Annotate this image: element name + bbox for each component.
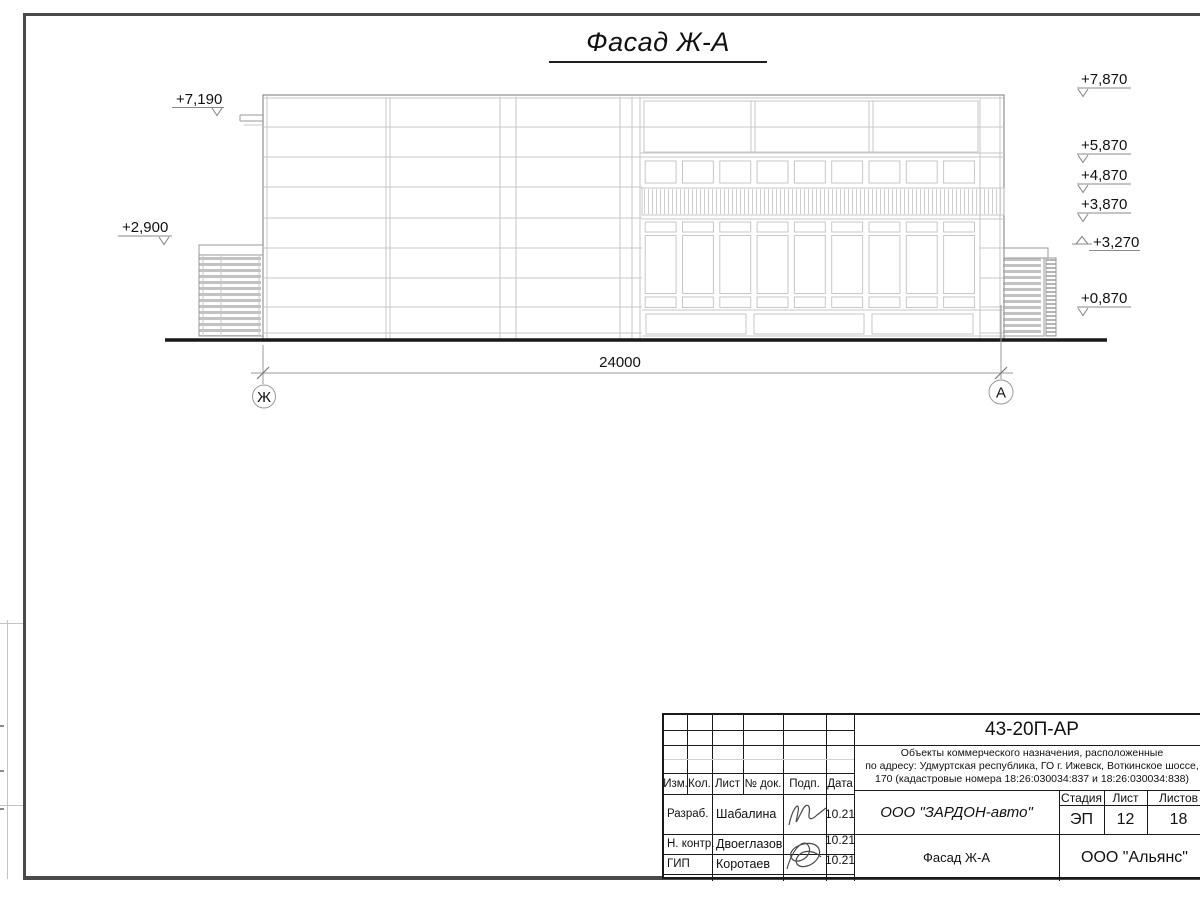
row-date: 10.21: [826, 850, 854, 870]
facade-floor-lines: [264, 127, 1004, 333]
window-pane: [906, 222, 937, 232]
window-pane: [794, 222, 825, 232]
window-pane: [757, 236, 788, 294]
window-pane: [869, 161, 900, 183]
elevation-mark-r3: +4,870: [1077, 167, 1131, 193]
signatures: [781, 795, 829, 879]
project-description: Объекты коммерческого назначения, распол…: [854, 747, 1200, 786]
row-role: ГИП: [667, 854, 712, 874]
louver-screen-right: [1004, 248, 1056, 336]
storefront-window-grid: [642, 161, 1004, 310]
elevation-value: +3,270: [1093, 234, 1139, 251]
stage-header: Стадия: [1059, 790, 1104, 805]
row-date: 10.21: [826, 830, 854, 850]
elevation-mark-r1: +7,870: [1077, 71, 1131, 97]
window-pane: [683, 161, 714, 183]
roof-canopy-left: [240, 115, 263, 125]
window-pane: [720, 236, 751, 294]
elevation-value: +0,870: [1081, 290, 1127, 307]
window-pane: [794, 161, 825, 183]
margin-text-remnant: [0, 770, 4, 772]
company-name: ООО "ЗАРДОН-авто": [854, 790, 1059, 834]
sheet-value: 12: [1104, 805, 1147, 834]
window-pane: [869, 236, 900, 294]
storefront-base-panels: [642, 314, 1004, 336]
row-role: Разраб.: [667, 794, 712, 834]
window-pane: [906, 297, 937, 308]
elevation-value: +7,190: [176, 91, 222, 108]
elevation-mark-r6: +0,870: [1077, 290, 1131, 316]
row-role: Н. контр.: [667, 834, 712, 854]
margin-column-line: [7, 620, 8, 879]
window-pane: [645, 222, 676, 232]
window-pane: [757, 222, 788, 232]
window-pane: [906, 236, 937, 294]
window-pane: [944, 222, 975, 232]
axis-label-a: А: [996, 385, 1006, 402]
elevation-value: +5,870: [1081, 137, 1127, 154]
window-pane: [645, 297, 676, 308]
window-pane: [645, 236, 676, 294]
elevation-value: +3,870: [1081, 196, 1127, 213]
stage-value: ЭП: [1059, 805, 1104, 834]
elevation-mark-r4: +3,870: [1077, 196, 1131, 222]
window-pane: [832, 297, 863, 308]
window-pane: [757, 161, 788, 183]
window-pane: [832, 236, 863, 294]
row-name: Шабалина: [716, 794, 783, 834]
window-pane: [683, 297, 714, 308]
margin-divider: [0, 623, 23, 624]
row-date: 10.21: [826, 804, 854, 824]
window-pane: [720, 297, 751, 308]
elevation-value: +2,900: [122, 219, 168, 236]
window-pane: [869, 222, 900, 232]
window-pane: [720, 161, 751, 183]
signature-scribble: [787, 843, 821, 869]
row-name: Коротаев: [716, 854, 783, 874]
margin-divider: [0, 805, 23, 806]
elevation-value: +7,870: [1081, 71, 1127, 88]
header-doc: № док.: [743, 773, 783, 794]
header-data: Дата: [826, 773, 854, 794]
window-pane: [906, 161, 937, 183]
header-list: Лист: [712, 773, 743, 794]
header-kol: Кол.: [687, 773, 712, 794]
object-name: Фасад Ж-А: [854, 834, 1059, 881]
title-block: Изм. Кол. Лист № док. Подп. Дата Разраб.…: [662, 713, 1200, 879]
elevation-value: +4,870: [1081, 167, 1127, 184]
window-pane: [832, 161, 863, 183]
signature-scribble: [789, 805, 826, 825]
sheets-header: Листов: [1147, 790, 1200, 805]
header-podp: Подп.: [783, 773, 826, 794]
margin-text-remnant: [0, 808, 4, 810]
header-izm: Изм.: [664, 773, 687, 794]
sheets-value: 18: [1147, 805, 1200, 834]
window-pane: [645, 161, 676, 183]
drawing-sheet: { "drawing": { "title": "Фасад Ж-А", "di…: [0, 0, 1200, 900]
window-pane: [720, 222, 751, 232]
project-line: 170 (кадастровые номера 18:26:030034:837…: [854, 773, 1200, 786]
elevation-mark-r2: +5,870: [1077, 137, 1131, 163]
elevation-mark-r5: +3,270: [1072, 234, 1140, 251]
window-pane: [757, 297, 788, 308]
window-pane: [944, 236, 975, 294]
window-pane: [944, 297, 975, 308]
louver-band: [642, 188, 1004, 215]
window-pane: [794, 236, 825, 294]
elevation-mark-left-mid: +2,900: [118, 219, 172, 245]
margin-text-remnant: [0, 725, 4, 727]
axis-label-zh: Ж: [257, 389, 271, 406]
window-pane: [832, 222, 863, 232]
org-name: ООО "Альянс": [1059, 834, 1200, 881]
window-pane: [794, 297, 825, 308]
doc-code: 43-20П-АР: [854, 715, 1200, 745]
window-pane: [944, 161, 975, 183]
sheet-header: Лист: [1104, 790, 1147, 805]
elevation-mark-left-top: +7,190: [172, 91, 224, 116]
facade-drawing: 24000 Ж А +7,190 +2,900 +7,870 +5,870 +4…: [0, 0, 1200, 460]
window-pane: [683, 236, 714, 294]
project-line: по адресу: Удмуртская республика, ГО г. …: [854, 760, 1200, 773]
axis-markers: Ж А: [253, 380, 1014, 408]
window-pane: [683, 222, 714, 232]
louver-screen-left: [199, 245, 263, 336]
window-pane: [869, 297, 900, 308]
project-line: Объекты коммерческого назначения, распол…: [854, 747, 1200, 760]
row-name: Двоеглазов: [716, 834, 783, 854]
dimension-value: 24000: [599, 354, 641, 371]
